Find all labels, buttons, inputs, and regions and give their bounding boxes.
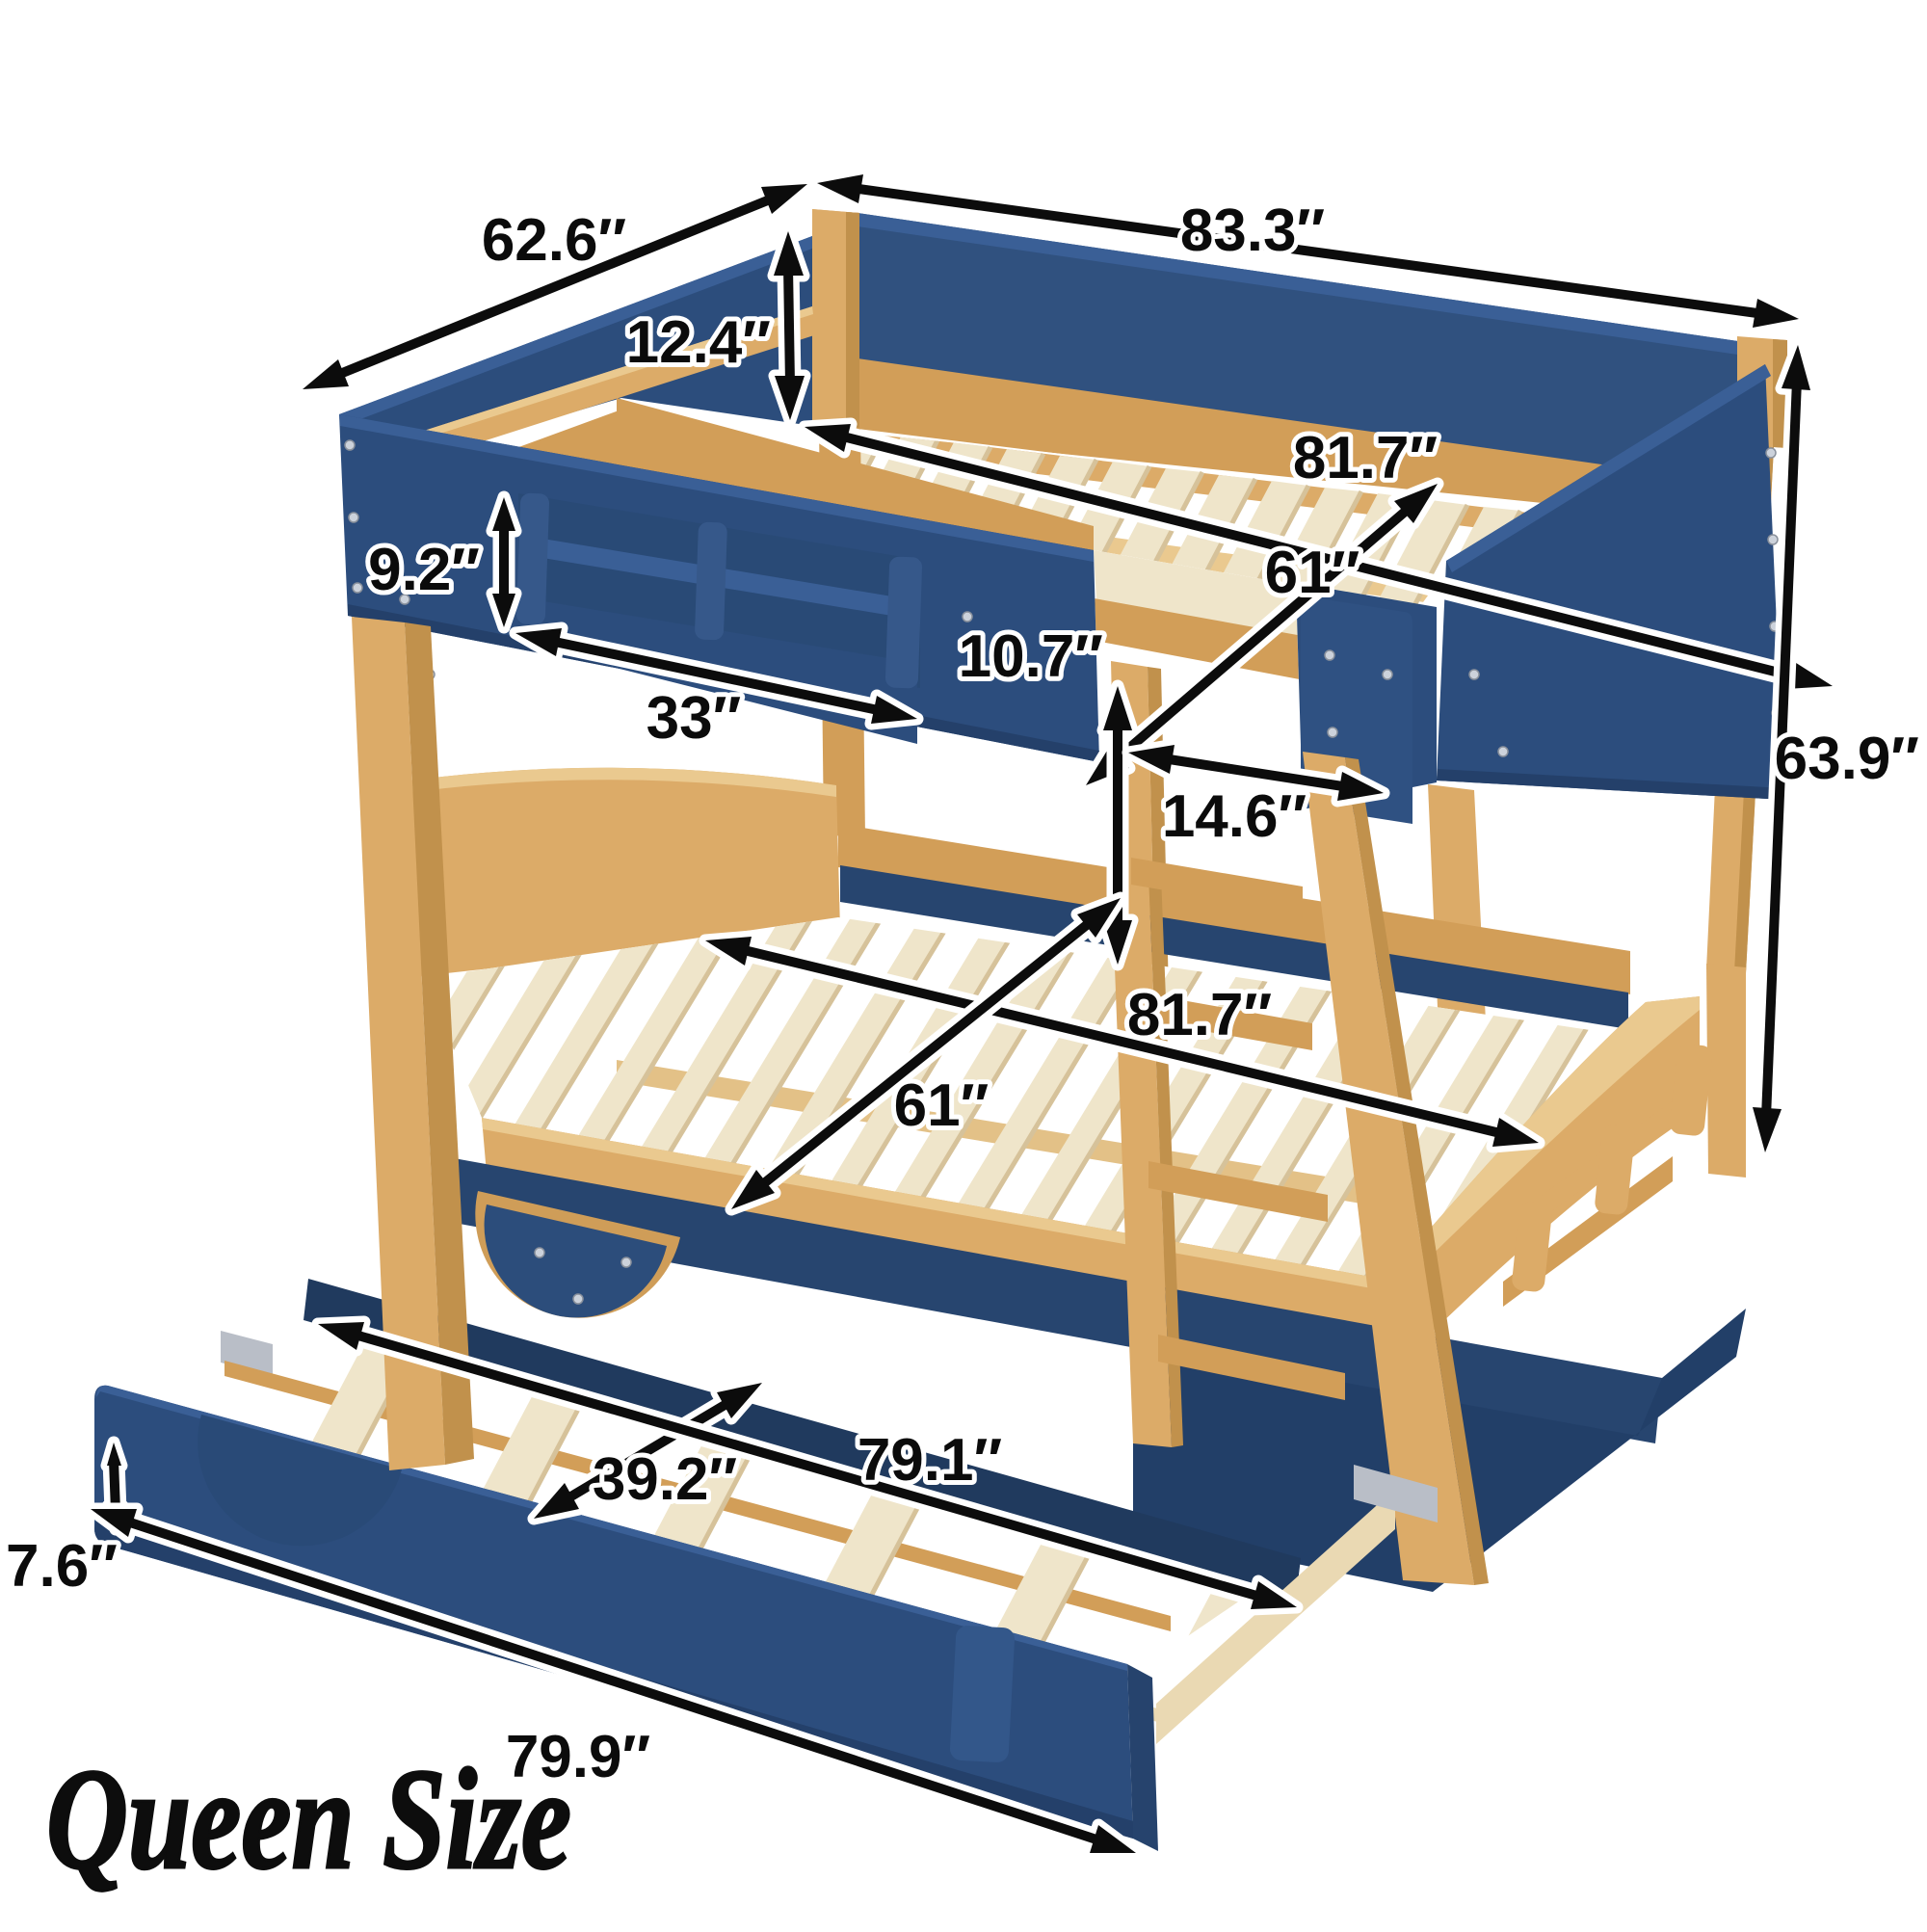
svg-text:61″: 61″	[1265, 540, 1360, 606]
svg-text:63.9″: 63.9″	[1775, 726, 1919, 792]
svg-text:79.1″: 79.1″	[858, 1427, 1002, 1494]
svg-text:61″: 61″	[894, 1072, 990, 1139]
svg-text:Queen Size: Queen Size	[46, 1739, 571, 1899]
svg-text:10.7″: 10.7″	[959, 623, 1103, 690]
svg-text:12.4″: 12.4″	[626, 309, 771, 376]
svg-text:9.2″: 9.2″	[368, 537, 480, 603]
svg-text:83.3″: 83.3″	[1180, 198, 1325, 264]
svg-text:39.2″: 39.2″	[593, 1446, 737, 1513]
svg-text:81.7″: 81.7″	[1127, 982, 1272, 1048]
svg-text:7.6″: 7.6″	[6, 1533, 118, 1600]
svg-text:14.6″: 14.6″	[1162, 783, 1307, 850]
svg-text:33″: 33″	[647, 685, 742, 752]
svg-text:62.6″: 62.6″	[482, 207, 626, 274]
svg-text:81.7″: 81.7″	[1293, 425, 1438, 491]
